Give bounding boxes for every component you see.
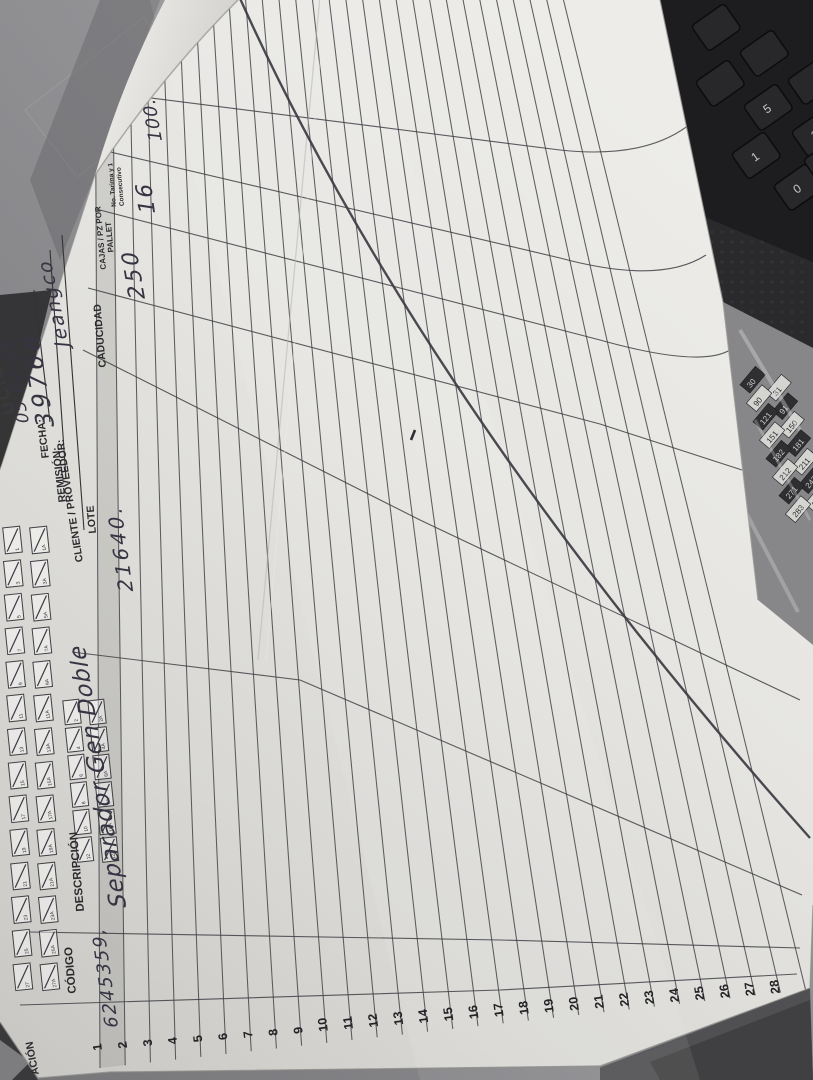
tarima-checkbox: 27	[13, 963, 33, 991]
photo-of-form: 5210 30319091121150151181182211212242271…	[0, 0, 813, 1080]
tarima-checkbox: 25	[12, 929, 32, 957]
row-number: 22	[616, 992, 632, 1008]
row-number: 23	[642, 990, 658, 1006]
tarima-checkbox: 9	[6, 661, 26, 689]
tarima-checkbox: 2A	[88, 699, 106, 725]
tarima-checkbox: 12	[75, 837, 93, 863]
tarima-checkbox: 19A	[37, 829, 57, 857]
tarima-checkbox: 11A	[34, 694, 54, 722]
row-number: 20	[566, 996, 582, 1012]
tarima-checkbox: 17A	[36, 795, 56, 823]
tarima-checkbox: 21	[11, 862, 31, 890]
tarima-checkbox: 8A	[95, 782, 113, 808]
tarima-checkbox: 23A	[38, 896, 58, 924]
row-number: 21	[591, 994, 607, 1010]
row-number: 27	[742, 981, 758, 997]
tarima-checkbox: 27A	[40, 963, 60, 991]
tarima-checkbox: 6	[68, 754, 86, 780]
row-number: 19	[541, 998, 557, 1014]
tarima-checkbox: 2	[63, 699, 81, 725]
tarima-checkbox: 8	[70, 782, 88, 808]
tarima-checkbox: 3A	[30, 560, 50, 588]
tarima-checkbox: 1A	[30, 526, 50, 554]
tarima-checkbox: 5	[4, 593, 24, 621]
tarima-checkbox: 1	[3, 526, 23, 554]
tarima-checkbox: 7A	[32, 627, 52, 655]
row-number: 25	[692, 985, 708, 1001]
row-number: 16	[466, 1004, 482, 1020]
tarima-checkbox: 3	[3, 560, 23, 588]
tarima-checkbox: 11	[7, 694, 27, 722]
tarima-checkbox: 13A	[34, 728, 54, 756]
row-number: 10	[315, 1017, 331, 1033]
tarima-checkbox: 23	[11, 896, 31, 924]
row-number: 11	[340, 1015, 356, 1030]
tarima-checkbox: 15A	[35, 761, 55, 789]
tarima-checkbox: 19	[10, 829, 30, 857]
tarima-checkbox: 5A	[31, 593, 51, 621]
row-number: 24	[667, 987, 683, 1003]
tarima-checkbox: 10A	[98, 809, 116, 835]
row-number: 13	[391, 1011, 407, 1027]
tarima-checkbox: 6A	[93, 754, 111, 780]
row-number: 26	[717, 983, 733, 999]
tarima-checkbox: 4	[65, 727, 83, 753]
row-number: 15	[441, 1006, 457, 1022]
row-number: 12	[365, 1013, 381, 1029]
tarima-checkbox: 4A	[90, 727, 108, 753]
tarima-checkbox: 17	[9, 795, 29, 823]
row-number: 18	[516, 1000, 532, 1016]
tarima-checkbox: 12A	[100, 837, 118, 863]
tarima-checkbox: 7	[5, 627, 25, 655]
tarima-checkbox: 25A	[39, 929, 59, 957]
row-number: 14	[416, 1008, 432, 1024]
tarima-checkbox: 21A	[38, 862, 58, 890]
row-number: 17	[491, 1002, 507, 1018]
row-number: 28	[767, 979, 783, 995]
tarima-checkbox: 9A	[33, 661, 53, 689]
scene-svg: 5210 30319091121150151181182211212242271…	[0, 0, 813, 1080]
tarima-checkbox: 13	[7, 728, 27, 756]
tarima-checkbox: 15	[8, 761, 28, 789]
tarima-checkbox: 10	[73, 809, 91, 835]
